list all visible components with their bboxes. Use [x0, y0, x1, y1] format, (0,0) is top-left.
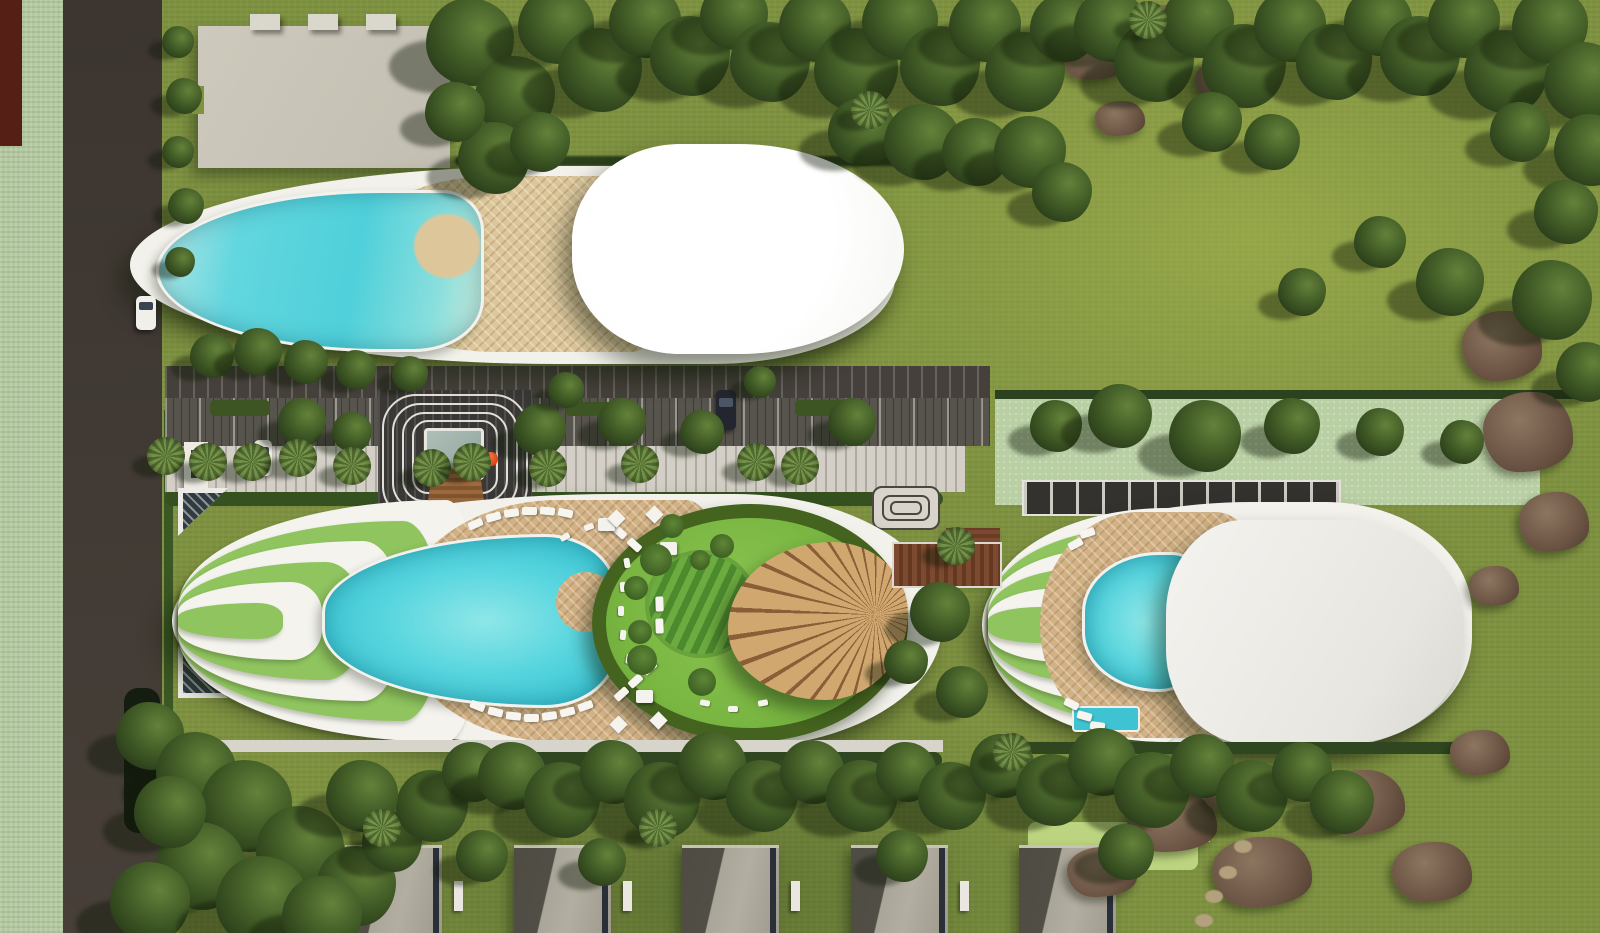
trail-step	[1219, 866, 1237, 879]
trail-step	[1205, 890, 1223, 903]
tree	[578, 838, 626, 886]
tree	[1354, 216, 1406, 268]
parked-car-white	[136, 296, 156, 330]
tree	[162, 136, 194, 168]
tree	[168, 188, 204, 224]
tree	[514, 404, 566, 456]
villa-roof-edge	[770, 848, 776, 933]
tree	[166, 78, 202, 114]
rock-outcrop	[1519, 492, 1589, 552]
garden-bush	[690, 550, 710, 570]
tree	[456, 830, 508, 882]
tree	[1098, 824, 1154, 880]
sun-lounger	[524, 714, 539, 722]
day-bed	[636, 690, 653, 703]
sun-lounger	[540, 506, 556, 516]
palm-tree	[851, 91, 889, 129]
tree	[1416, 248, 1484, 316]
villa-ac-unit	[960, 881, 969, 911]
palm-tree	[279, 439, 317, 477]
palm-tree	[993, 733, 1031, 771]
palm-tree	[233, 443, 271, 481]
tree	[1278, 268, 1326, 316]
sun-lounger	[522, 507, 537, 515]
tree	[548, 372, 584, 408]
tree	[828, 398, 876, 446]
villa-ac-unit	[623, 881, 632, 911]
tree	[392, 356, 428, 392]
palm-tree	[333, 447, 371, 485]
tree	[1440, 420, 1484, 464]
tree	[1169, 400, 1241, 472]
tree	[1032, 162, 1092, 222]
tree	[1088, 384, 1152, 448]
tree	[1356, 408, 1404, 456]
tree	[1244, 114, 1300, 170]
tree	[510, 112, 570, 172]
garden-bush	[628, 620, 652, 644]
garden-lounger	[728, 706, 738, 712]
tree	[1512, 260, 1592, 340]
tree	[162, 26, 194, 58]
tree	[936, 666, 988, 718]
villa-roof-edge	[939, 848, 945, 933]
tree	[744, 366, 776, 398]
rock-outcrop	[1469, 566, 1519, 606]
palm-tree	[1129, 1, 1167, 39]
white-canopy-roof-top	[572, 144, 904, 354]
palm-tree	[639, 809, 677, 847]
garden-bush	[688, 668, 716, 696]
tree	[1534, 180, 1598, 244]
tree	[680, 410, 724, 454]
palm-tree	[529, 449, 567, 487]
garden-bush	[624, 576, 648, 600]
rooftop-unit	[250, 14, 280, 30]
beach-entry	[414, 214, 480, 278]
maroon-track-strip	[0, 0, 22, 146]
garden-lounger	[618, 606, 624, 616]
sun-lounger	[655, 596, 664, 611]
tree	[910, 582, 970, 642]
tree	[425, 82, 485, 142]
palm-tree	[363, 809, 401, 847]
tree	[876, 830, 928, 882]
palm-tree	[453, 443, 491, 481]
garden-bush	[640, 544, 672, 576]
tree	[1310, 770, 1374, 834]
tree	[1264, 398, 1320, 454]
palm-tree	[781, 447, 819, 485]
rock-outcrop	[1392, 842, 1472, 902]
terrace-band-green	[178, 603, 283, 639]
tree	[598, 398, 646, 446]
tree	[884, 640, 928, 684]
tree	[332, 412, 372, 452]
palm-tree	[937, 527, 975, 565]
white-canopy-roof-right	[1166, 520, 1464, 744]
aerial-site-render	[0, 0, 1600, 933]
garden-lounger	[620, 630, 627, 640]
villa-roof	[682, 845, 779, 933]
rock-outcrop	[1450, 730, 1510, 775]
tree	[1490, 102, 1550, 162]
parking-hedge	[210, 400, 270, 416]
tree	[336, 350, 376, 390]
palm-tree	[621, 445, 659, 483]
palm-tree	[189, 443, 227, 481]
garden-bush	[710, 534, 734, 558]
garden-bush	[660, 514, 684, 538]
tree	[134, 776, 206, 848]
trail-step	[1234, 840, 1252, 853]
trail-step	[1195, 914, 1213, 927]
rooftop-unit	[308, 14, 338, 30]
villa-ac-unit	[791, 881, 800, 911]
sun-lounger	[655, 618, 664, 633]
sun-lounger	[506, 711, 522, 721]
ring-motif	[872, 486, 940, 530]
tree	[165, 247, 195, 277]
garden-bush	[627, 645, 657, 675]
rooftop-unit	[366, 14, 396, 30]
